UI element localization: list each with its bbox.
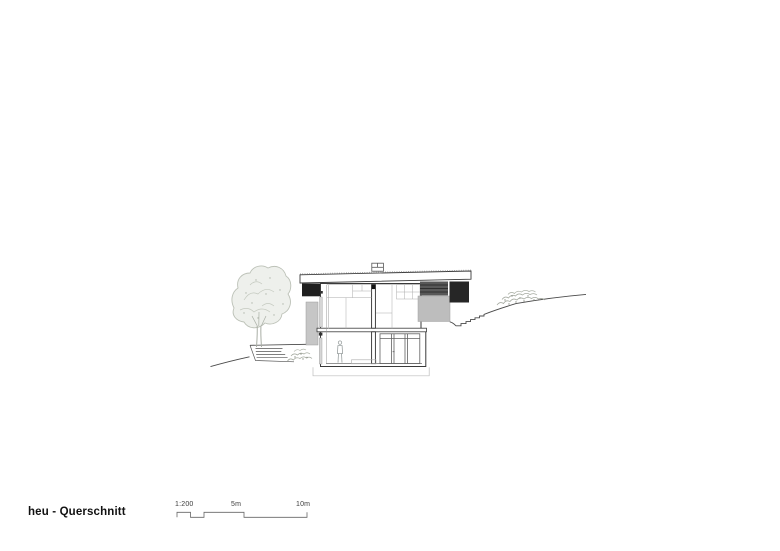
shrub-left [288, 349, 313, 361]
scale-5m-label: 5m [231, 501, 241, 508]
scale-bar [177, 512, 307, 517]
section-drawing [0, 0, 780, 551]
drawing-sheet: heu - Querschnitt 1:200 5m 10m [0, 0, 780, 551]
retaining-wall [306, 302, 318, 345]
scale-ratio-label: 1:200 [175, 501, 194, 508]
foundation-outline [313, 367, 429, 376]
lower-door-fixing [319, 333, 323, 336]
canopy-shadow-right [450, 282, 470, 303]
drawing-title: heu - Querschnitt [28, 506, 126, 518]
lower-door-frame [319, 338, 322, 364]
tree-crown [232, 266, 291, 328]
central-wall-lower [372, 332, 376, 364]
terrain-line-left [211, 357, 250, 367]
central-wall-cap [372, 285, 376, 290]
scale-10m-label: 10m [296, 501, 310, 508]
floor-slab [317, 328, 427, 332]
tree [232, 266, 291, 347]
roof-skylight [372, 263, 384, 271]
exterior-stairs [250, 344, 306, 362]
upper-window-fixing [320, 291, 323, 294]
upper-window-frame [320, 297, 323, 327]
canopy-shadow-left [302, 284, 320, 297]
upper-floor-volume [321, 284, 422, 331]
building-section [317, 284, 427, 367]
central-wall-upper [372, 285, 376, 329]
facade-panel [418, 296, 450, 322]
roof-slab [300, 271, 471, 283]
